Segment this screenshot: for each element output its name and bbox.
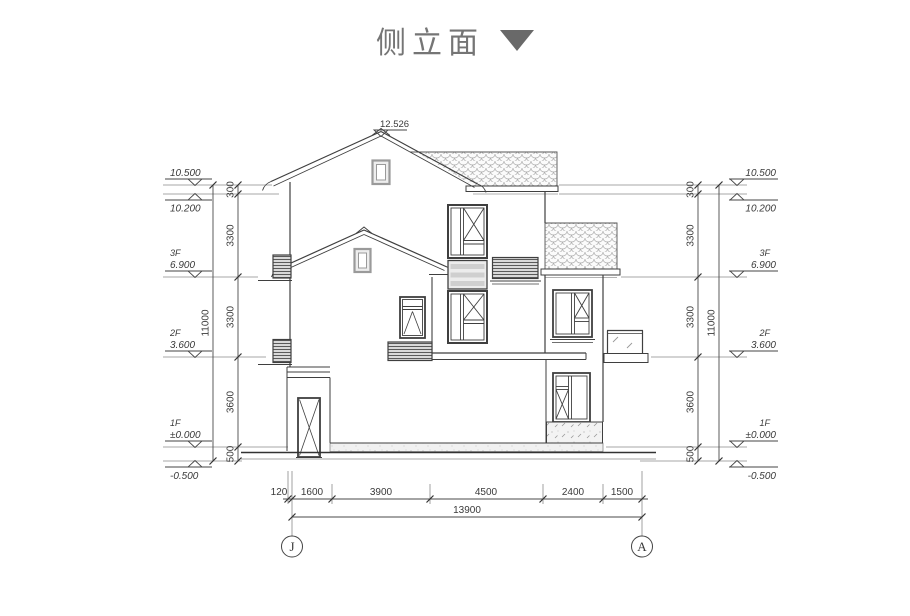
stair-window-lower [448,291,487,343]
level-f1-left: ±0.000 [170,430,201,441]
level-f2-left: 3.600 [170,340,195,351]
floor2-label-left: 2F [169,328,181,338]
level-top-right: 10.500 [745,168,776,179]
hdim-seg4: 2400 [562,487,585,498]
vdim-seg2-right: 3300 [686,305,697,328]
level-markers-right: 10.500 10.200 3F 6.900 2F 3.600 1F ±0.00… [729,168,778,482]
floor3-label-right: 3F [759,248,770,258]
level-f3-left: 6.900 [170,260,195,271]
vdim-seg4-left: 500 [226,445,237,462]
level-f3-right: 6.900 [751,260,776,271]
vdim-seg0-right: 300 [686,181,697,198]
level-eave-right: 10.200 [745,204,776,215]
vdim-seg4-right: 500 [686,445,697,462]
hdim-seg3: 4500 [475,487,498,498]
stone-base [547,422,603,443]
floor2-label-right: 2F [758,328,770,338]
window-2f-left [400,297,425,338]
ridge-level-text: 12.526 [380,119,409,130]
vdim-seg1-right: 3300 [686,224,697,247]
attic-window-main [373,161,390,185]
secondary-gable-roof [272,227,456,353]
entry-door [296,398,322,458]
hdim-seg5: 1500 [611,487,634,498]
vdim-total-left: 11000 [201,309,212,337]
hdim-seg0: 120 [271,487,288,498]
louvre-3f-right [490,258,541,285]
sill-louvre-box [388,342,432,361]
axis-letter-right: A [637,539,647,554]
vdim-seg3-right: 3600 [686,390,697,413]
level-grade-left: -0.500 [170,471,199,482]
stair-window-upper [448,205,487,258]
entrance-porch [287,367,330,451]
glass-mark [627,343,632,348]
louvre-2f-left [258,340,292,365]
elevation-sheet: 侧立面 [0,0,910,616]
vdim-total-right: 11000 [707,309,718,337]
attic-window-secondary [355,249,371,272]
level-top-left: 10.500 [170,168,201,179]
level-f2-right: 3.600 [751,340,776,351]
floor1-label-left: 1F [170,418,181,428]
hdim-system: 120 1600 3900 4500 2400 1500 13900 J A [271,471,653,557]
elevation-drawing: 12.526 10.500 10.200 3F 6.900 2F 3.600 1… [0,0,910,616]
balcony [604,331,648,363]
stair-spandrel [448,261,487,290]
wing-tiled-roof [541,223,620,278]
level-eave-left: 10.200 [170,204,201,215]
floor3-label-left: 3F [170,248,181,258]
level-f1-right: ±0.000 [745,430,776,441]
axis-letter-left: J [289,539,294,554]
hdim-seg1: 1600 [301,487,324,498]
hdim-seg2: 3900 [370,487,393,498]
window-1f-wing [553,373,590,422]
axis-bubbles: J A [282,536,653,557]
vdim-seg0-left: 300 [226,181,237,198]
window-2f-wing [550,290,595,343]
vdim-seg1-left: 3300 [226,224,237,247]
glass-mark [613,337,618,342]
louvre-3f-left [258,255,292,281]
ridge-level-marker: 12.526 [374,119,409,137]
level-grade-right: -0.500 [748,471,777,482]
floor-slab [432,353,586,360]
hdim-extension-lines [288,471,642,536]
hdim-total: 13900 [453,505,481,516]
floor1-label-right: 1F [759,418,770,428]
vdim-seg2-left: 3300 [226,305,237,328]
house [241,129,656,460]
hdim-texts: 120 1600 3900 4500 2400 1500 13900 [271,487,634,516]
vdim-seg3-left: 3600 [226,390,237,413]
